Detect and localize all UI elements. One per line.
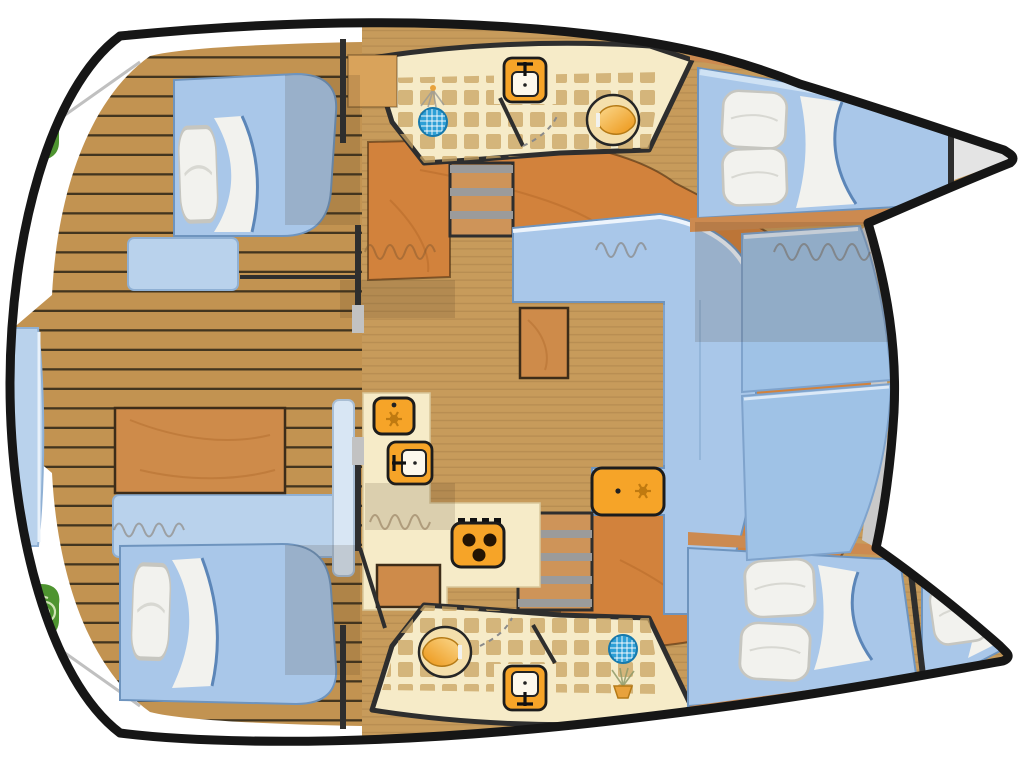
bathroom-port [372,43,692,163]
pillow-icon [131,564,171,659]
cabin-bench [128,238,238,290]
pillow-icon [739,622,811,682]
coolbox-icon [592,468,664,515]
plant-pot [614,686,632,698]
toilet-icon [419,627,471,677]
shower-drain-icon [609,635,637,663]
pillow-icon [722,148,788,206]
door-gap [352,437,364,465]
fridge-icon [374,398,414,434]
galley-locker [377,565,440,607]
hull-interior [0,0,1024,768]
door-gap [352,305,364,333]
pillow-icon [744,558,816,618]
pillow-icon [178,127,218,222]
bathroom-starboard [372,605,692,725]
salon-table [520,308,568,378]
stove-icon [452,518,504,567]
shower-drain-icon [419,108,447,136]
cockpit-table [115,408,285,493]
galley-sink-icon [388,442,432,484]
cabin-starboard-forward [688,532,916,718]
catamaran-floor-plan [0,0,1024,768]
pillow-icon [721,90,787,149]
toilet-icon [587,95,639,145]
floor-plan-canvas [0,0,1024,768]
washbasin-icon [504,666,546,710]
washbasin-icon [504,58,546,102]
companionway-steps [450,163,513,236]
